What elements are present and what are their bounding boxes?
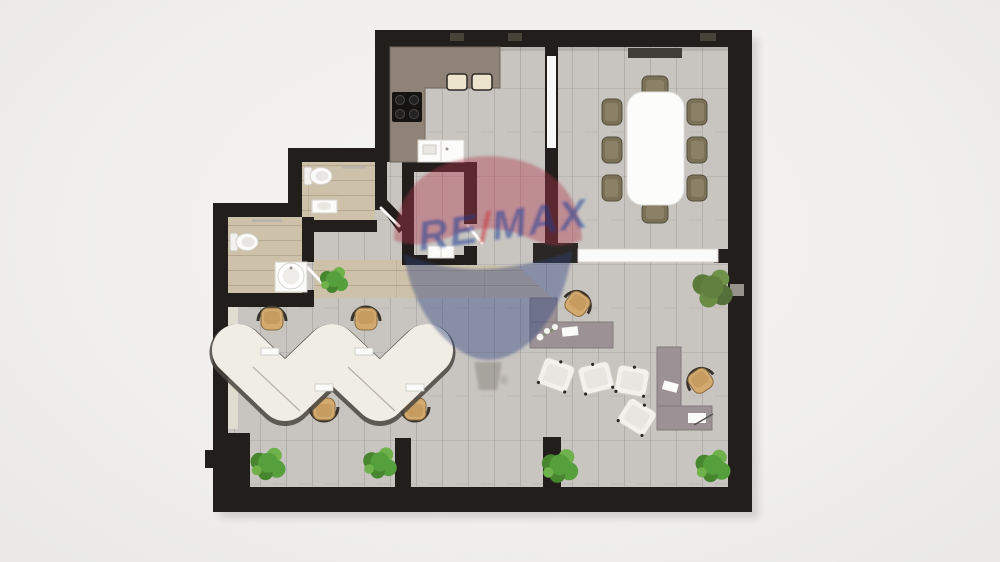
- conference-chair: [602, 137, 622, 163]
- wall-pillar-1: [228, 433, 250, 487]
- wall-bump-left: [205, 450, 214, 468]
- conference-chair: [687, 175, 707, 201]
- wall-bath-lower-right-a: [302, 217, 314, 262]
- wall-pillar-2: [395, 438, 411, 487]
- conference-chair: [687, 99, 707, 125]
- conference-chair: [602, 175, 622, 201]
- media-board: [628, 48, 682, 58]
- towel-rail: [342, 166, 366, 169]
- floor-plan-canvas: RE/MAX ®: [0, 0, 1000, 562]
- conference-door: [547, 56, 556, 148]
- conference-chair: [602, 99, 622, 125]
- registered-mark: ®: [500, 375, 508, 387]
- bar-stool: [472, 74, 492, 90]
- cooktop: [392, 92, 422, 122]
- task-chair: [352, 307, 380, 330]
- toilet: [230, 233, 258, 251]
- bar-stool: [447, 74, 467, 90]
- paper: [562, 326, 579, 337]
- conference-chair: [687, 137, 707, 163]
- conference-table: [627, 92, 684, 205]
- paper: [688, 413, 706, 423]
- toilet: [304, 167, 332, 185]
- shelf: [252, 219, 282, 222]
- washbasin-round: [275, 262, 307, 292]
- sideboard: [578, 249, 718, 262]
- floor-plan-svg: RE/MAX ®: [0, 0, 1000, 562]
- wall-bath-lower-bottom: [213, 293, 314, 307]
- task-chair: [258, 307, 286, 330]
- conference-chair: [642, 203, 668, 223]
- kitchen-sink-unit: [418, 140, 464, 162]
